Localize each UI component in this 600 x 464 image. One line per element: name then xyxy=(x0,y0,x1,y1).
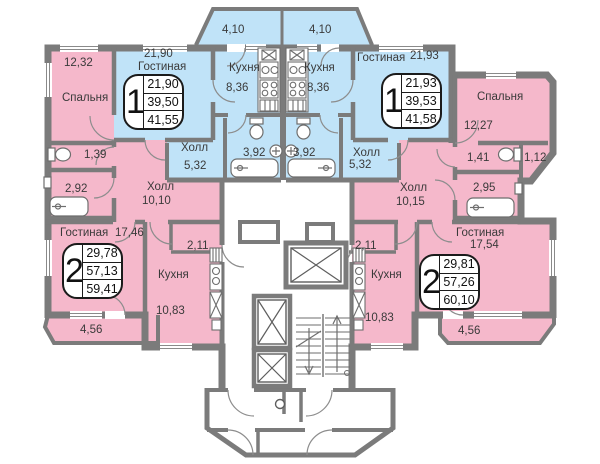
area-label-living: 17,54 xyxy=(470,239,499,252)
area-label-hall: 5,32 xyxy=(184,160,206,173)
card-rows: 29,81 57,26 60,10 xyxy=(439,256,478,308)
toilet-icon xyxy=(297,118,310,139)
elevator-shaft-icon xyxy=(254,350,290,386)
room-label-hall: Холл xyxy=(353,147,380,160)
apartment-card-two-right: 2 29,81 57,26 60,10 xyxy=(419,254,480,310)
apartment-card-two-left: 2 29,78 57,13 59,41 xyxy=(62,243,123,299)
card-row-living-area: 29,78 xyxy=(83,245,121,262)
elevator-shaft-icon xyxy=(254,296,290,348)
card-type-number: 1 xyxy=(125,76,143,128)
card-row-usable-area: 57,26 xyxy=(440,273,478,291)
room-label-bedroom: Спальня xyxy=(62,92,108,105)
card-type-number: 2 xyxy=(64,245,82,297)
area-label-kitchen: 10,83 xyxy=(156,305,185,318)
area-label-bath: 2,95 xyxy=(473,182,495,195)
room-label-living: Гостиная xyxy=(357,52,405,65)
toilet-icon xyxy=(250,118,263,139)
card-row-usable-area: 39,53 xyxy=(402,92,440,110)
area-label-bath: 3,92 xyxy=(243,147,265,160)
card-row-total-area: 41,58 xyxy=(402,109,440,127)
card-type-number: 2 xyxy=(421,256,439,308)
room-label-hall: Холл xyxy=(400,182,427,195)
stairs-icon xyxy=(296,314,350,377)
garbage-chute-icon xyxy=(276,400,285,409)
floor-plan: 12,32 Спальня 1,39 2,92 Холл 10,10 Гости… xyxy=(0,0,600,464)
toilet-icon xyxy=(48,148,71,161)
room-label-kitchen: Кухня xyxy=(371,269,402,282)
area-label-bath: 3,92 xyxy=(293,147,315,160)
card-rows: 21,93 39,53 41,58 xyxy=(401,75,440,127)
apartment-card-one-left: 1 21,90 39,50 41,55 xyxy=(123,74,184,130)
room-label-kitchen: Кухня xyxy=(304,62,335,75)
card-rows: 29,78 57,13 59,41 xyxy=(82,245,121,297)
elevator-shaft-icon xyxy=(286,243,346,287)
core xyxy=(240,222,350,409)
area-label-hall: 5,32 xyxy=(349,159,371,172)
card-row-total-area: 59,41 xyxy=(83,279,121,297)
shaft-room xyxy=(240,222,333,242)
card-rows: 21,90 39,50 41,55 xyxy=(143,76,182,128)
area-label-hall: 10,15 xyxy=(396,196,425,209)
area-label-closet: 2,11 xyxy=(187,240,209,253)
card-row-living-area: 29,81 xyxy=(440,256,478,273)
room-label-hall: Холл xyxy=(147,181,174,194)
area-label-bedroom: 12,27 xyxy=(464,120,493,133)
room-label-bedroom: Спальня xyxy=(477,91,523,104)
area-label-balcony: 4,56 xyxy=(458,325,480,338)
area-label-living: 17,46 xyxy=(115,227,144,240)
area-label-balcony: 4,10 xyxy=(309,24,331,37)
area-label-wc: 1,39 xyxy=(84,149,106,162)
area-label-kitchen: 10,83 xyxy=(365,312,394,325)
room-label-living: Гостиная xyxy=(138,61,186,74)
card-row-living-area: 21,93 xyxy=(402,75,440,92)
area-label-storage: 1,12 xyxy=(524,152,546,165)
kitchen-counter-strip xyxy=(210,248,222,330)
area-label-living: 21,90 xyxy=(144,48,173,61)
bathtub-icon xyxy=(288,159,335,177)
apartment-card-one-right: 1 21,93 39,53 41,58 xyxy=(381,73,442,129)
card-row-usable-area: 39,50 xyxy=(144,93,182,111)
kitchen-counter-strip xyxy=(353,248,365,330)
area-label-balcony: 4,56 xyxy=(80,324,102,337)
room-label-kitchen: Кухня xyxy=(158,269,189,282)
room-label-kitchen: Кухня xyxy=(229,62,260,75)
area-label-wc: 1,41 xyxy=(467,152,489,165)
bathtub-icon xyxy=(50,197,88,216)
stove-icon xyxy=(258,48,280,112)
room-label-hall: Холл xyxy=(181,142,208,155)
card-type-number: 1 xyxy=(383,75,401,127)
area-label-balcony: 4,10 xyxy=(222,24,244,37)
card-row-usable-area: 57,13 xyxy=(83,262,121,280)
area-label-kitchen: 8,36 xyxy=(307,82,329,95)
card-row-living-area: 21,90 xyxy=(144,76,182,93)
card-row-total-area: 41,55 xyxy=(144,110,182,128)
bathtub-icon xyxy=(467,198,514,217)
card-row-total-area: 60,10 xyxy=(440,290,478,308)
stove-icon xyxy=(286,48,308,112)
area-label-bedroom: 12,32 xyxy=(64,57,93,70)
area-label-kitchen: 8,36 xyxy=(226,82,248,95)
area-label-closet: 2,11 xyxy=(355,240,377,253)
bathtub-icon xyxy=(231,159,278,177)
area-label-living: 21,93 xyxy=(410,50,439,63)
area-label-bath: 2,92 xyxy=(65,183,87,196)
toilet-icon xyxy=(499,148,522,161)
room-label-living: Гостиная xyxy=(456,227,504,240)
area-label-hall: 10,10 xyxy=(142,195,171,208)
room-label-living: Гостиная xyxy=(60,227,108,240)
